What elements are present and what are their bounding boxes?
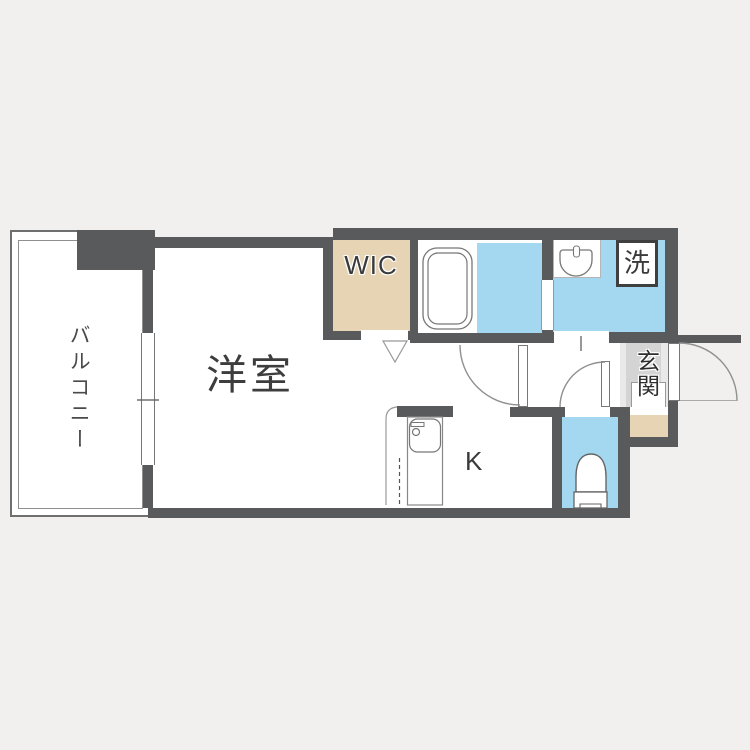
bathroom-floor — [477, 243, 542, 333]
balcony-label: バルコニー — [66, 324, 90, 454]
wall-bath-south — [410, 333, 553, 343]
main-room-label: 洋室 — [206, 352, 294, 399]
balcony-window — [141, 333, 155, 465]
kitchen-label: K — [465, 447, 482, 477]
shoe-cabinet-gap — [630, 407, 668, 415]
wall-step-right — [630, 437, 678, 447]
entrance-door-arc — [679, 343, 737, 401]
wall-right-top — [665, 228, 678, 343]
laundry-label: 洗 — [616, 240, 658, 287]
washroom-door-opening — [554, 331, 609, 344]
wall-toilet-left — [552, 407, 562, 508]
entrance-label: 玄関 — [633, 349, 659, 399]
wall-porch-top — [658, 335, 741, 343]
toilet-door-leaf — [601, 361, 610, 407]
wall-wic-bath — [410, 240, 418, 333]
hall-door-leaf — [518, 345, 528, 407]
wall-toilet-top-right — [610, 407, 630, 417]
wall-hall-south — [510, 407, 565, 417]
shoe-cabinet — [630, 415, 668, 437]
wic-door-opening — [361, 330, 408, 342]
wall-balcony-lower — [143, 465, 153, 508]
wall-wic-left — [323, 240, 333, 340]
toilet-floor — [562, 417, 618, 508]
floor-plan: バルコニー 洋室 WIC 洗 玄関 K — [0, 0, 750, 750]
wall-toilet-right — [618, 417, 630, 508]
wic-label: WIC — [338, 251, 404, 281]
entrance-floor-stripe-left — [620, 343, 626, 407]
wall-top-left — [148, 237, 333, 248]
wash-basin-counter — [553, 240, 601, 278]
wall-balcony-upper — [143, 248, 153, 333]
wall-top-right — [333, 228, 678, 240]
wall-kitchen-top — [397, 406, 453, 417]
wall-bottom — [148, 508, 630, 518]
toilet-door-opening — [565, 407, 610, 417]
entrance-door-leaf — [668, 343, 680, 401]
bath-door-opening — [541, 280, 554, 330]
